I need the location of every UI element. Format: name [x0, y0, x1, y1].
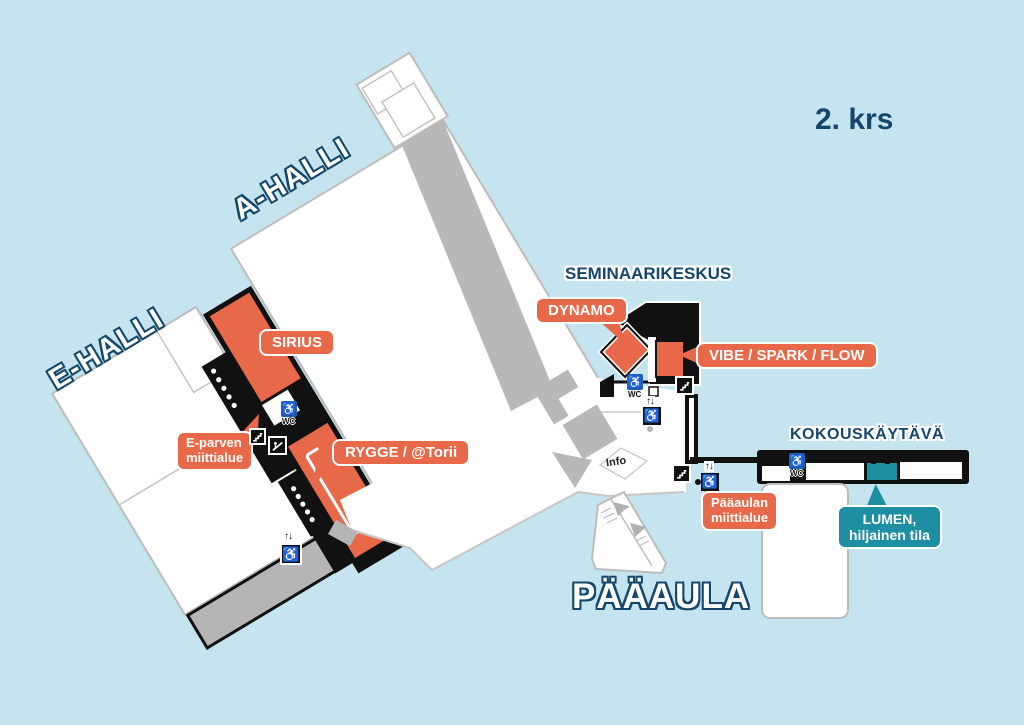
- eparvi-bubble: E-parven miittialue: [176, 431, 253, 471]
- paaaulan-bubble: Pääaulan miittialue: [701, 491, 778, 531]
- lumen-bubble-line2: hiljainen tila: [849, 527, 930, 543]
- eparvi-bubble-line1: E-parven: [186, 436, 243, 451]
- eparvi-bubble-line2: miittialue: [186, 451, 243, 466]
- rygge-torii-bubble: RYGGE / @Torii: [332, 439, 470, 466]
- accessible-elevator-icon: ♿: [280, 543, 302, 565]
- paaaulan-bubble-line2: miittialue: [711, 511, 768, 526]
- door-tab: [871, 457, 876, 464]
- lumen-bubble: LUMEN, hiljainen tila: [837, 505, 942, 549]
- elevator-icon: ↑↓: [704, 461, 714, 472]
- door-tab: [885, 457, 890, 464]
- meeting-rooms-west: [806, 463, 864, 480]
- floor-indicator: 2. krs: [815, 103, 893, 137]
- accessible-wc-icon: ♿: [281, 401, 297, 417]
- sirius-bubble: SIRIUS: [259, 329, 335, 356]
- lumen-bubble-line1: LUMEN,: [849, 511, 930, 527]
- escalator-icon: [268, 436, 287, 455]
- stairs-icon: [672, 464, 691, 483]
- room-vibe-spark-flow: [656, 341, 684, 377]
- meeting-room: [762, 466, 790, 481]
- accessible-wc-icon: ♿: [789, 453, 805, 469]
- connector-corridor-h: [690, 457, 762, 463]
- seminar-area-label: SEMINAARIKESKUS: [565, 264, 731, 284]
- meeting-rooms-east: [900, 462, 962, 479]
- pillar-dot: [647, 426, 653, 432]
- main-lobby-label: PÄÄAULA: [572, 577, 750, 617]
- accessible-wc-icon: ♿: [627, 374, 643, 390]
- dynamo-bubble: DYNAMO: [535, 297, 628, 324]
- floorplan-map: 2. krs A-HALLI E-HALLI SEMINAARIKESKUS K…: [0, 0, 1024, 725]
- elevator-icon: ↑↓: [283, 531, 293, 542]
- paaaulan-bubble-line1: Pääaulan: [711, 496, 768, 511]
- stairs-icon: [249, 428, 266, 445]
- stairs-icon: [675, 376, 694, 395]
- wc-label: WC: [628, 390, 641, 399]
- wheelchair-icon: ♿: [643, 407, 661, 425]
- wc-label: WC: [790, 469, 803, 478]
- wheelchair-icon: ♿: [701, 473, 719, 491]
- elevator-icon: ↑↓: [645, 396, 655, 407]
- connector-corridor-v-core: [689, 398, 694, 460]
- room-lumen: [867, 463, 897, 480]
- door-marker: [649, 387, 658, 396]
- meeting-corridor-label: KOKOUSKÄYTÄVÄ: [790, 426, 944, 444]
- vibe-spark-flow-bubble: VIBE / SPARK / FLOW: [696, 342, 878, 369]
- seminar-corridor: [648, 337, 656, 382]
- wc-label: WC: [282, 417, 295, 426]
